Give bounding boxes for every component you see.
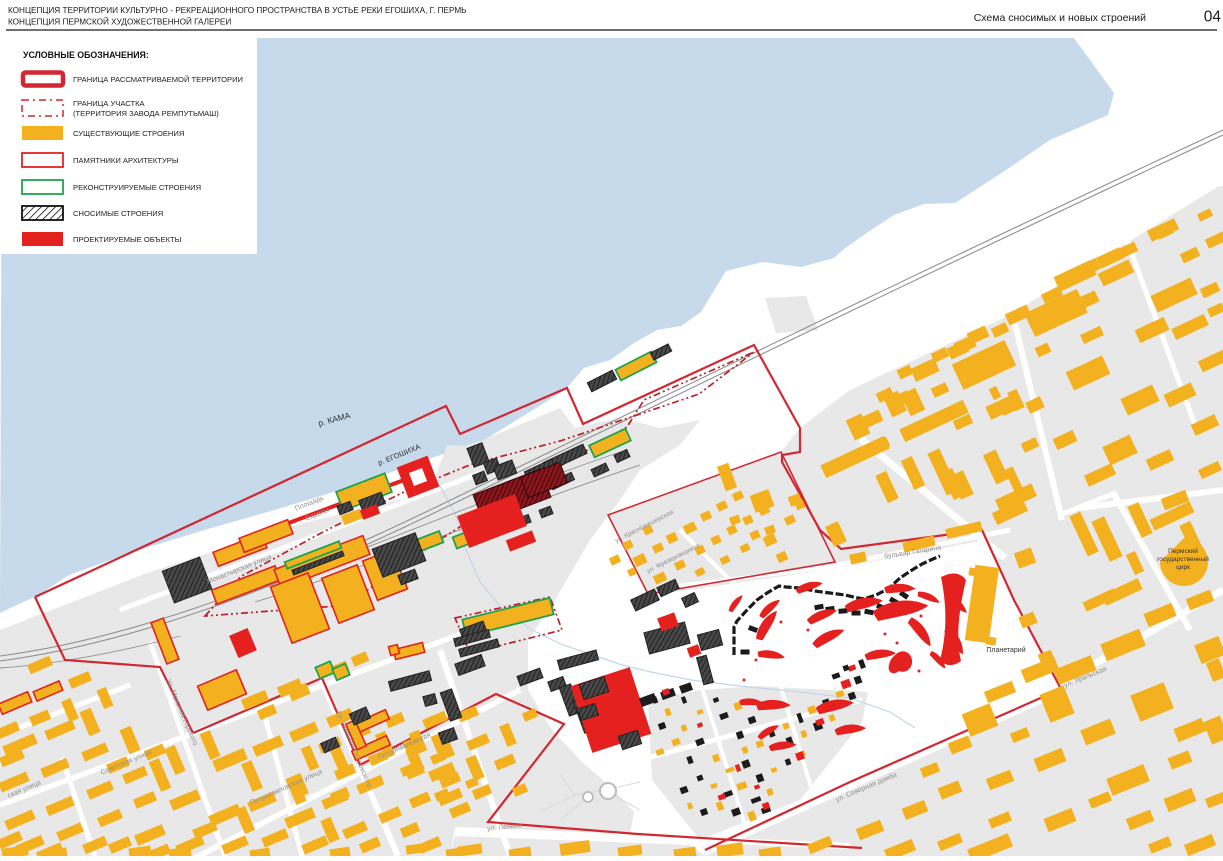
svg-text:ГРАНИЦА УЧАСТКА: ГРАНИЦА УЧАСТКА bbox=[73, 99, 146, 108]
svg-text:ПРОЕКТИРУЕМЫЕ ОБЪЕКТЫ: ПРОЕКТИРУЕМЫЕ ОБЪЕКТЫ bbox=[73, 235, 182, 244]
svg-text:государственный: государственный bbox=[1157, 555, 1209, 563]
svg-text:ГРАНИЦА РАССМАТРИВАЕМОЙ ТЕРРИТ: ГРАНИЦА РАССМАТРИВАЕМОЙ ТЕРРИТОРИИ bbox=[73, 75, 243, 84]
svg-text:РЕКОНСТРУИРУЕМЫЕ СТРОЕНИЯ: РЕКОНСТРУИРУЕМЫЕ СТРОЕНИЯ bbox=[73, 183, 201, 192]
svg-text:СНОСИМЫЕ СТРОЕНИЯ: СНОСИМЫЕ СТРОЕНИЯ bbox=[73, 209, 163, 218]
svg-text:Планетарий: Планетарий bbox=[986, 646, 1025, 654]
svg-text:СУЩЕСТВУЮЩИЕ СТРОЕНИЯ: СУЩЕСТВУЮЩИЕ СТРОЕНИЯ bbox=[73, 129, 184, 138]
svg-text:Схема сносимых и новых строени: Схема сносимых и новых строений bbox=[974, 12, 1146, 24]
svg-text:(ТЕРРИТОРИЯ ЗАВОДА РЕМПУТЬМАШ): (ТЕРРИТОРИЯ ЗАВОДА РЕМПУТЬМАШ) bbox=[73, 109, 219, 118]
svg-text:Пермский: Пермский bbox=[1168, 547, 1198, 555]
svg-text:КОНЦЕПЦИЯ ПЕРМСКОЙ ХУДОЖЕСТВЕН: КОНЦЕПЦИЯ ПЕРМСКОЙ ХУДОЖЕСТВЕННОЙ ГАЛЕРЕ… bbox=[8, 16, 231, 27]
svg-text:КОНЦЕПЦИЯ ТЕРРИТОРИИ КУЛЬТУРНО: КОНЦЕПЦИЯ ТЕРРИТОРИИ КУЛЬТУРНО - РЕКРЕАЦ… bbox=[8, 6, 467, 15]
svg-text:ПАМЯТНИКИ АРХИТЕКТУРЫ: ПАМЯТНИКИ АРХИТЕКТУРЫ bbox=[73, 156, 179, 165]
svg-text:цирк: цирк bbox=[1176, 564, 1190, 571]
svg-text:04: 04 bbox=[1204, 9, 1222, 26]
svg-text:УСЛОВНЫЕ ОБОЗНАЧЕНИЯ:: УСЛОВНЫЕ ОБОЗНАЧЕНИЯ: bbox=[23, 50, 149, 60]
